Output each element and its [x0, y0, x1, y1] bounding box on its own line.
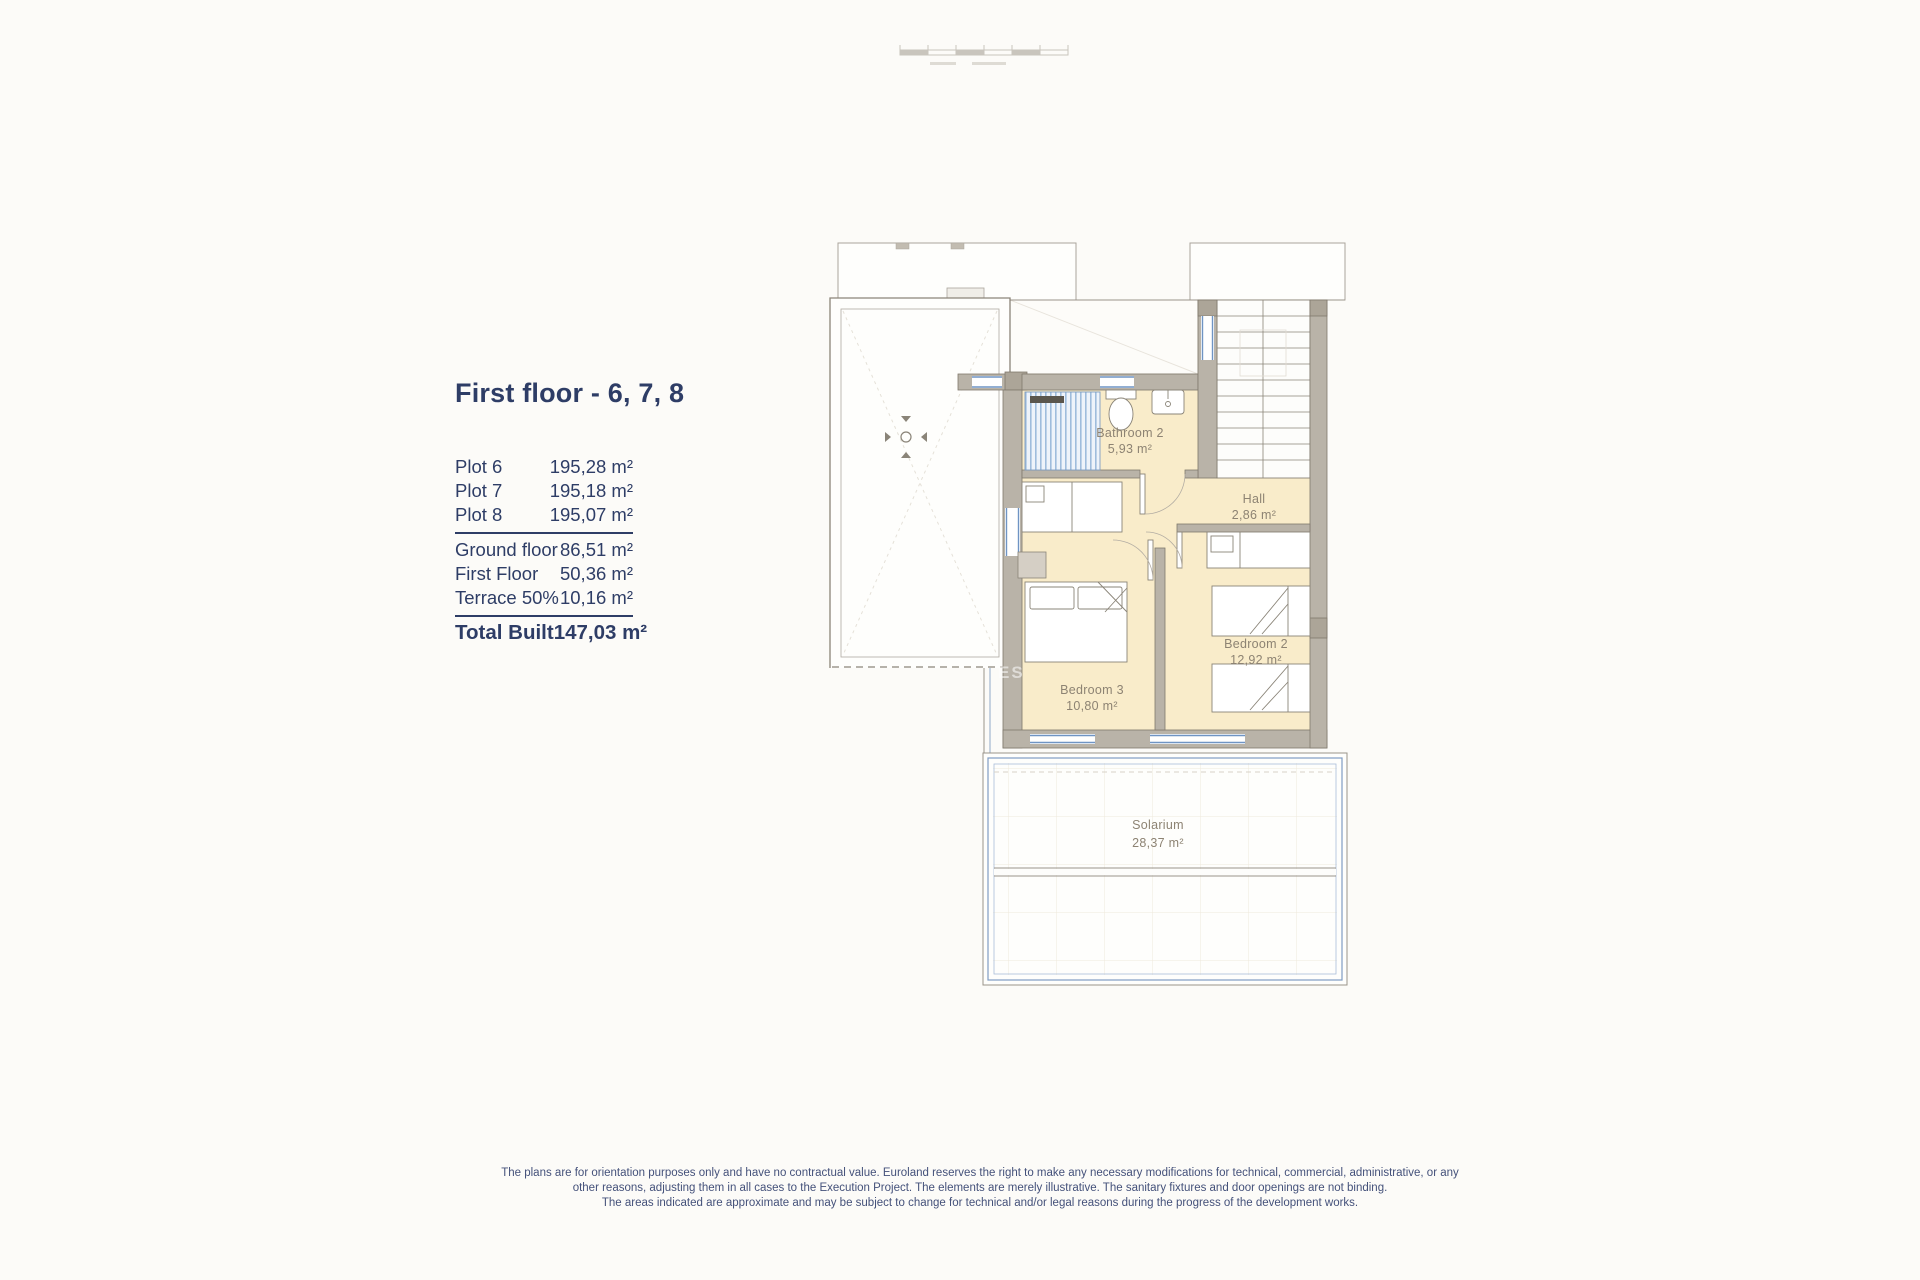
- row-label: Total Built: [455, 621, 554, 645]
- table-row-plot-6: Plot 6 195,28 m²: [455, 455, 633, 479]
- table-row-terrace: Terrace 50% 10,16 m²: [455, 586, 633, 610]
- room-area-hall: 2,86 m²: [1232, 508, 1276, 522]
- disclaimer-line-2: other reasons, adjusting them in all cas…: [380, 1181, 1580, 1196]
- disclaimer-line-1: The plans are for orientation purposes o…: [380, 1166, 1580, 1181]
- row-label: Plot 7: [455, 479, 502, 503]
- roof-outline-right: [1190, 243, 1345, 300]
- room-area-solarium: 28,37 m²: [1132, 836, 1184, 850]
- floor-plan: ES Bathroom 2 5,93 m² Hall 2,86 m² Bedro…: [650, 30, 1410, 1010]
- room-area-bathroom2: 5,93 m²: [1108, 442, 1152, 456]
- row-value: 195,28 m²: [550, 455, 633, 479]
- roof-outline: [838, 243, 1076, 300]
- table-row-plot-8: Plot 8 195,07 m²: [455, 503, 633, 527]
- room-area-bedroom3: 10,80 m²: [1066, 699, 1118, 713]
- row-value: 10,16 m²: [560, 586, 633, 610]
- row-label: Ground floor: [455, 538, 558, 562]
- double-bed: [1025, 582, 1127, 662]
- info-panel: First floor - 6, 7, 8 Plot 6 195,28 m² P…: [455, 378, 635, 645]
- table-row-plot-7: Plot 7 195,18 m²: [455, 479, 633, 503]
- row-value: 195,07 m²: [550, 503, 633, 527]
- divider-line: [455, 615, 633, 617]
- room-label-solarium: Solarium: [1132, 818, 1184, 832]
- watermark: ES: [998, 663, 1025, 682]
- hall-closet: [1207, 532, 1310, 568]
- disclaimer-line-3: The areas indicated are approximate and …: [380, 1196, 1580, 1211]
- table-row-first-floor: First Floor 50,36 m²: [455, 562, 633, 586]
- row-label: First Floor: [455, 562, 538, 586]
- bedside-unit: [1018, 552, 1046, 578]
- row-value: 195,18 m²: [550, 479, 633, 503]
- row-value: 50,36 m²: [560, 562, 633, 586]
- sink-icon: [1152, 390, 1184, 414]
- table-row-total-built: Total Built 147,03 m²: [455, 621, 633, 645]
- page-title: First floor - 6, 7, 8: [455, 378, 635, 409]
- divider-line: [455, 532, 633, 534]
- row-label: Plot 6: [455, 455, 502, 479]
- table-row-ground-floor: Ground floor 86,51 m²: [455, 538, 633, 562]
- row-value: 86,51 m²: [560, 538, 633, 562]
- area-table: Plot 6 195,28 m² Plot 7 195,18 m² Plot 8…: [455, 455, 633, 645]
- scale-bar: [900, 45, 1068, 65]
- room-label-bathroom2: Bathroom 2: [1096, 426, 1164, 440]
- floor-plan-svg: ES Bathroom 2 5,93 m² Hall 2,86 m² Bedro…: [650, 30, 1410, 1010]
- row-value: 147,03 m²: [554, 621, 647, 645]
- shower: [1025, 392, 1100, 470]
- bedroom3-wardrobe: [1022, 482, 1122, 532]
- room-label-bedroom2: Bedroom 2: [1224, 637, 1288, 651]
- single-bed-2: [1212, 664, 1310, 712]
- disclaimer: The plans are for orientation purposes o…: [380, 1166, 1580, 1211]
- single-bed-1: [1212, 586, 1310, 636]
- staircase: [1217, 300, 1310, 478]
- terrace: [830, 298, 1010, 668]
- row-label: Terrace 50%: [455, 586, 559, 610]
- room-label-bedroom3: Bedroom 3: [1060, 683, 1124, 697]
- row-label: Plot 8: [455, 503, 502, 527]
- room-label-hall: Hall: [1243, 492, 1266, 506]
- room-area-bedroom2: 12,92 m²: [1230, 653, 1282, 667]
